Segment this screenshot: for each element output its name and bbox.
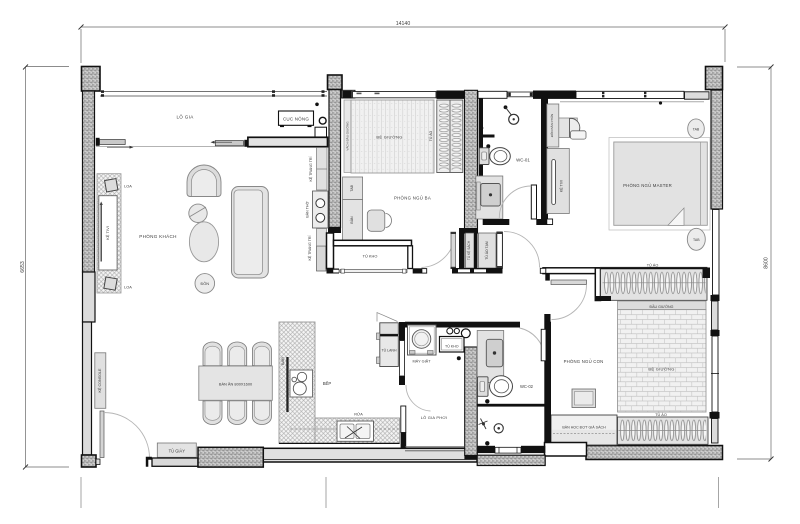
svg-text:TỦ KHO: TỦ KHO: [363, 254, 378, 259]
svg-text:ĐẦU GIƯỜNG: ĐẦU GIƯỜNG: [650, 304, 674, 309]
svg-text:MÁY GIẶT: MÁY GIẶT: [412, 360, 431, 364]
svg-text:TỦ ÁO TẠM: TỦ ÁO TẠM: [484, 241, 489, 260]
svg-text:TỦ KHO: TỦ KHO: [445, 343, 459, 348]
svg-text:LÔ GIA PHƠI: LÔ GIA PHƠI: [421, 415, 448, 420]
svg-text:14140: 14140: [396, 21, 411, 27]
svg-text:KỆ CONSOLE: KỆ CONSOLE: [97, 368, 102, 393]
svg-text:LOA: LOA: [124, 285, 132, 290]
svg-text:ĐÔN: ĐÔN: [200, 281, 209, 286]
svg-text:LÔ GIA: LÔ GIA: [176, 114, 194, 120]
svg-text:8600: 8600: [764, 257, 770, 269]
svg-text:TỦ GIÀY: TỦ GIÀY: [169, 449, 186, 454]
svg-text:ĐÔN BÀN PHẤN: ĐÔN BÀN PHẤN: [549, 114, 554, 138]
svg-text:CỤC NÓNG: CỤC NÓNG: [283, 116, 309, 122]
svg-text:PHÒNG KHÁCH: PHÒNG KHÁCH: [139, 233, 177, 239]
svg-text:TỦ LẠNH: TỦ LẠNH: [382, 348, 397, 353]
svg-text:BẾP: BẾP: [323, 381, 332, 386]
svg-text:PHÒNG NGỦ BA: PHÒNG NGỦ BA: [394, 196, 431, 201]
svg-text:TỦ ÁO: TỦ ÁO: [655, 412, 667, 417]
svg-text:6653: 6653: [20, 261, 26, 273]
svg-text:TỦ ÁO: TỦ ÁO: [428, 130, 433, 141]
svg-text:BÀN HỌC ĐỢT GIÁ SÁCH: BÀN HỌC ĐỢT GIÁ SÁCH: [562, 425, 606, 429]
svg-text:WC-01: WC-01: [516, 158, 530, 163]
svg-text:BÀN THỜ: BÀN THỜ: [305, 201, 310, 217]
svg-text:TỦ KỆ SÁCH: TỦ KỆ SÁCH: [466, 240, 471, 260]
svg-text:KỆ TRANG TRÍ: KỆ TRANG TRÍ: [308, 156, 313, 181]
svg-text:KỆ TIVI: KỆ TIVI: [105, 226, 110, 240]
svg-text:TAB: TAB: [693, 127, 700, 131]
svg-text:BỆ GIƯỜNG: BỆ GIƯỜNG: [648, 367, 674, 372]
svg-text:RỬA: RỬA: [354, 412, 363, 417]
svg-text:PHÒNG NGỦ CON: PHÒNG NGỦ CON: [564, 359, 604, 364]
svg-text:KỆ TIVI: KỆ TIVI: [559, 180, 564, 192]
svg-text:LOA: LOA: [124, 184, 132, 189]
svg-text:TAB: TAB: [350, 184, 354, 191]
svg-text:WC-02: WC-02: [520, 384, 534, 389]
svg-text:KỆ TRANG TRÍ: KỆ TRANG TRÍ: [307, 235, 312, 260]
svg-text:TỦ ÁO: TỦ ÁO: [647, 263, 659, 268]
svg-text:VÁCH ĐẦU GIƯỜNG: VÁCH ĐẦU GIƯỜNG: [344, 121, 349, 151]
svg-text:BÀN: BÀN: [350, 216, 354, 224]
svg-text:BỆ GIƯỜNG: BỆ GIƯỜNG: [376, 135, 402, 140]
svg-text:TAB: TAB: [693, 238, 700, 242]
svg-text:BÀN ĂN 800X1600: BÀN ĂN 800X1600: [219, 382, 253, 387]
svg-text:PHÒNG NGỦ MASTER: PHÒNG NGỦ MASTER: [623, 183, 672, 188]
svg-text:BAR: BAR: [281, 357, 285, 365]
